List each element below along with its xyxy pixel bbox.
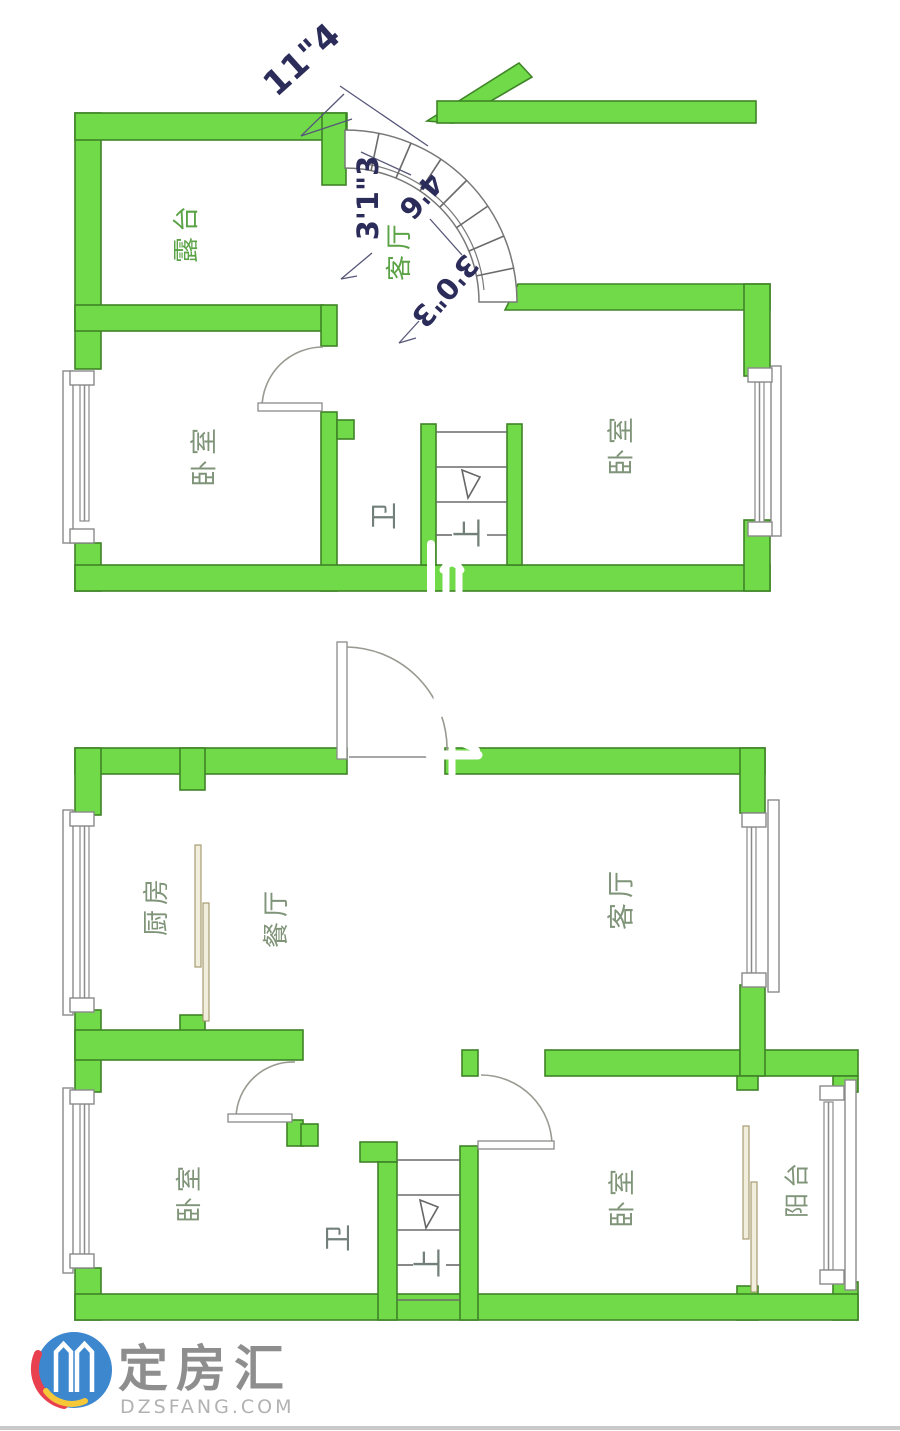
wall: [75, 565, 770, 591]
wall: [75, 113, 347, 140]
wall: [737, 1076, 758, 1090]
upper-right-window-symbol: [748, 366, 781, 536]
upper-left-window-symbol: [63, 371, 94, 543]
balcony-sliding-door: [743, 1126, 757, 1292]
lower-bedroom-left-door: [228, 1062, 295, 1122]
entry-door: [337, 642, 447, 759]
wall: [75, 748, 101, 815]
room-label-dining: 餐厅: [262, 886, 292, 948]
wall: [337, 420, 354, 439]
room-label-terrace: 露台: [172, 201, 202, 263]
wall: [744, 284, 770, 376]
wall: [75, 1030, 303, 1060]
room-label-living-upper: 客厅: [385, 219, 415, 281]
wall: [740, 748, 765, 813]
dim-label-2: 3'1"3: [351, 156, 385, 241]
wall: [462, 1050, 478, 1076]
stairs-up-label-lower: 上: [412, 1248, 447, 1278]
balcony-window-symbol: [820, 1080, 856, 1290]
wall: [321, 412, 337, 591]
lower-bedroom-left-window-symbol: [63, 1088, 94, 1273]
wall: [445, 748, 765, 774]
wall: [75, 305, 323, 331]
wall: [301, 1124, 318, 1146]
stairs-up-label-upper: 上: [452, 518, 487, 548]
dim-label-4: 3'0"3: [404, 248, 485, 334]
wall: [180, 748, 205, 790]
lower-stairs: [397, 1160, 460, 1300]
wall: [360, 1142, 397, 1162]
floorplan-image: 卧室 卧室 露台 客厅 卫 上 11"4 3'1"3 4'6 3'0"3: [0, 0, 900, 1431]
upper-bedroom-door: [258, 347, 323, 411]
lower-bedroom-right-door: [478, 1075, 554, 1149]
wall: [75, 748, 347, 774]
wall: [507, 424, 522, 565]
wall: [460, 1146, 478, 1320]
room-label-living-lower: 客厅: [607, 866, 638, 930]
living-room-window-symbol: [742, 800, 779, 992]
wall: [545, 1050, 745, 1076]
room-label-bedroom-left: 卧室: [190, 423, 221, 487]
wall-arrow-bar: [437, 101, 756, 123]
lower-floor-walls: [75, 748, 858, 1320]
room-label-bedroom-right-lower: 卧室: [608, 1164, 639, 1228]
room-label-bath-lower: 卫: [322, 1224, 355, 1252]
site-logo: 定房汇 DZSFANG.COM: [35, 1332, 295, 1418]
upper-room-labels: 卧室 卧室: [190, 412, 638, 487]
kitchen-sliding-door: [195, 845, 209, 1021]
logo-name: 定房汇: [118, 1340, 292, 1398]
stairs-direction-arrow: [420, 1200, 438, 1228]
logo-domain: DZSFANG.COM: [120, 1396, 294, 1418]
wall: [321, 305, 337, 346]
wall: [322, 113, 346, 185]
dim-label-1: 11"4: [256, 15, 349, 104]
room-label-balcony: 阳台: [783, 1158, 812, 1218]
wall: [505, 284, 770, 310]
room-label-bedroom-right: 卧室: [607, 412, 638, 476]
room-label-kitchen: 厨房: [142, 874, 172, 936]
kitchen-window-symbol: [63, 810, 94, 1015]
wall: [378, 1162, 397, 1320]
wall: [740, 985, 765, 1076]
room-label-bedroom-left-lower: 卧室: [175, 1161, 205, 1223]
room-label-bath-upper: 卫: [368, 502, 401, 530]
stairs-direction-arrow: [462, 470, 480, 498]
